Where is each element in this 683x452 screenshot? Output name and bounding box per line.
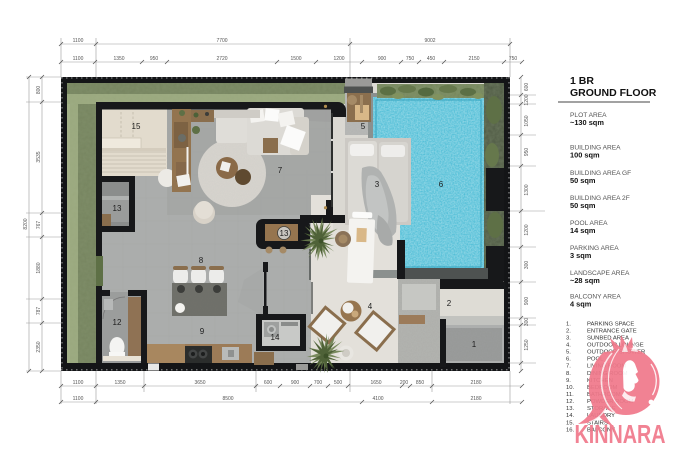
svg-text:~28 sqm: ~28 sqm <box>570 276 600 285</box>
svg-text:9.: 9. <box>566 378 571 384</box>
svg-text:2180: 2180 <box>470 396 481 402</box>
svg-text:14.: 14. <box>566 413 575 419</box>
svg-text:6.: 6. <box>566 357 571 363</box>
svg-text:8: 8 <box>199 256 204 265</box>
svg-text:1200: 1200 <box>524 94 530 105</box>
svg-text:3.: 3. <box>566 336 571 342</box>
svg-text:1100: 1100 <box>73 380 84 386</box>
svg-text:3 sqm: 3 sqm <box>570 251 592 260</box>
svg-text:14: 14 <box>271 333 280 342</box>
svg-text:ENTRANCE GATE: ENTRANCE GATE <box>587 328 637 334</box>
svg-text:KINNARA: KINNARA <box>575 421 666 449</box>
svg-text:8200: 8200 <box>23 218 29 229</box>
svg-text:1100: 1100 <box>73 396 84 402</box>
svg-text:7: 7 <box>278 166 283 175</box>
svg-text:787: 787 <box>36 307 42 316</box>
svg-text:1650: 1650 <box>370 380 381 386</box>
svg-text:8500: 8500 <box>222 396 233 402</box>
svg-text:2: 2 <box>447 299 452 308</box>
svg-text:1050: 1050 <box>524 115 530 126</box>
svg-text:10.: 10. <box>566 385 575 391</box>
svg-text:2720: 2720 <box>216 56 227 62</box>
svg-text:9002: 9002 <box>424 38 435 44</box>
svg-text:16.: 16. <box>566 427 575 433</box>
svg-text:15.: 15. <box>566 420 575 426</box>
svg-text:950: 950 <box>150 56 159 62</box>
svg-text:GROUND FLOOR: GROUND FLOOR <box>570 87 657 99</box>
svg-text:2180: 2180 <box>470 380 481 386</box>
svg-text:50 sqm: 50 sqm <box>570 176 596 185</box>
svg-text:800: 800 <box>36 86 42 95</box>
svg-text:300: 300 <box>524 261 530 270</box>
svg-text:950: 950 <box>524 148 530 157</box>
svg-text:1350: 1350 <box>113 56 124 62</box>
svg-text:1100: 1100 <box>73 38 84 44</box>
svg-text:850: 850 <box>416 380 425 386</box>
svg-text:12.: 12. <box>566 399 575 405</box>
svg-text:450: 450 <box>427 56 436 62</box>
svg-text:1300: 1300 <box>524 184 530 195</box>
svg-text:13.: 13. <box>566 406 575 412</box>
svg-text:1200: 1200 <box>524 224 530 235</box>
svg-text:7700: 7700 <box>216 38 227 44</box>
svg-text:3: 3 <box>375 180 380 189</box>
svg-text:1200: 1200 <box>333 56 344 62</box>
svg-text:600: 600 <box>524 83 530 92</box>
svg-text:500: 500 <box>334 380 343 386</box>
svg-text:1250: 1250 <box>524 339 530 350</box>
svg-text:1500: 1500 <box>290 56 301 62</box>
svg-text:2.: 2. <box>566 328 571 334</box>
svg-text:PARKING SPACE: PARKING SPACE <box>587 321 634 327</box>
svg-text:1880: 1880 <box>36 262 42 273</box>
svg-text:15: 15 <box>132 122 141 131</box>
svg-text:100 sqm: 100 sqm <box>570 151 600 160</box>
svg-text:750: 750 <box>406 56 415 62</box>
svg-text:4 sqm: 4 sqm <box>570 300 592 309</box>
svg-text:9: 9 <box>200 327 205 336</box>
svg-text:900: 900 <box>524 297 530 306</box>
svg-text:13: 13 <box>280 229 289 238</box>
svg-text:11.: 11. <box>566 392 574 398</box>
svg-text:1: 1 <box>472 340 477 349</box>
svg-text:2350: 2350 <box>36 341 42 352</box>
svg-text:750: 750 <box>509 56 518 62</box>
svg-text:12: 12 <box>113 318 122 327</box>
svg-text:1100: 1100 <box>73 56 84 62</box>
svg-text:4.: 4. <box>566 343 571 349</box>
svg-text:900: 900 <box>291 380 300 386</box>
svg-text:1350: 1350 <box>114 380 125 386</box>
svg-text:7.: 7. <box>566 364 571 370</box>
svg-text:50 sqm: 50 sqm <box>570 201 596 210</box>
svg-text:8.: 8. <box>566 371 571 377</box>
svg-text:3535: 3535 <box>36 151 42 162</box>
svg-text:2150: 2150 <box>468 56 479 62</box>
svg-text:5: 5 <box>361 122 366 131</box>
svg-text:14 sqm: 14 sqm <box>570 226 596 235</box>
svg-text:13: 13 <box>113 204 122 213</box>
svg-text:~130 sqm: ~130 sqm <box>570 118 604 127</box>
svg-text:900: 900 <box>378 56 387 62</box>
svg-text:5.: 5. <box>566 350 571 356</box>
svg-text:1 BR: 1 BR <box>570 75 594 87</box>
svg-text:4: 4 <box>368 302 373 311</box>
svg-text:3650: 3650 <box>194 380 205 386</box>
svg-text:4100: 4100 <box>372 396 383 402</box>
svg-text:767: 767 <box>36 221 42 230</box>
svg-text:1.: 1. <box>566 321 571 327</box>
svg-text:6: 6 <box>439 180 444 189</box>
svg-text:300: 300 <box>524 318 530 327</box>
svg-text:200: 200 <box>400 380 409 386</box>
svg-text:600: 600 <box>264 380 273 386</box>
svg-text:700: 700 <box>314 380 323 386</box>
